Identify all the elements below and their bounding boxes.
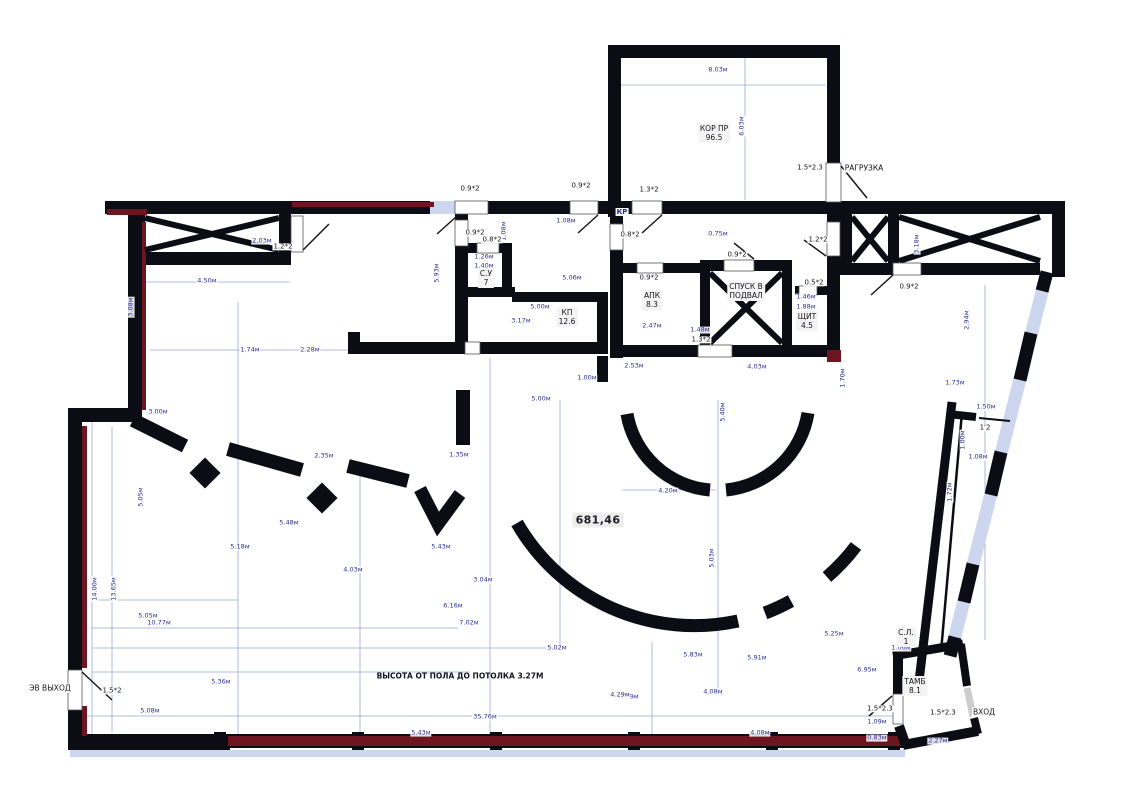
dimension-label: 6.95м <box>856 667 877 674</box>
room-label: ТАМБ8.1 <box>902 676 927 696</box>
dimension-label: 3.17м <box>510 318 531 325</box>
door-size-label: 1.3*2 <box>690 336 711 343</box>
dimension-label: 1.73м <box>944 380 965 387</box>
ceiling-height-note: ВЫСОТА ОТ ПОЛА ДО ПОТОЛКА 3.27М <box>377 672 544 681</box>
room-label: КОР ПР96.5 <box>698 123 730 143</box>
dimension-label: 1.00м <box>576 375 597 382</box>
dimension-label: 1.48м <box>689 327 710 334</box>
dimension-label: 5.43м <box>430 544 451 551</box>
dimension-label: 5.00м <box>530 396 551 403</box>
dimension-label: 1.35м <box>448 452 469 459</box>
dimension-label: 5.91м <box>746 655 767 662</box>
door-size-label: 1.3*2 <box>638 186 659 193</box>
dimension-label: 1.70м <box>840 367 847 388</box>
dimension-label: 5.83м <box>682 652 703 659</box>
dimension-label: 1.00м <box>960 429 967 450</box>
dimension-label: 1.74м <box>239 347 260 354</box>
door-size-label: 1.2*2 <box>807 236 828 243</box>
dimension-label: 5.08м <box>139 708 160 715</box>
door-size-label: 1.5*2.3 <box>866 705 894 712</box>
dimension-label: 35.76м <box>472 714 498 721</box>
room-label: ЩИТ4.5 <box>796 311 818 331</box>
dimension-label: 1.08м <box>555 218 576 225</box>
door-size-label: 0.5*2 <box>803 279 824 286</box>
dimension-label: 1.08м <box>967 454 988 461</box>
dimension-label: 0.83м <box>866 735 887 742</box>
dimension-label: 1.09м <box>866 719 887 726</box>
dimension-label: 5.02м <box>546 645 567 652</box>
dimension-label: 4.29м <box>609 692 630 699</box>
dimension-label: 2.94м <box>964 309 971 330</box>
dimension-label: 5.00м <box>529 304 550 311</box>
floor-plan-canvas: 681,46 ВЫСОТА ОТ ПОЛА ДО ПОТОЛКА 3.27М 8… <box>0 0 1143 800</box>
dimension-label: 6.03м <box>739 115 746 136</box>
dimension-label: 3.00м <box>147 409 168 416</box>
dimension-label: 5.43м <box>410 730 431 737</box>
dimension-label: 2.28м <box>299 347 320 354</box>
dimension-label: 4.08м <box>749 730 770 737</box>
dimension-label: 2.27м <box>927 738 948 745</box>
dimension-label: 5.18м <box>229 544 250 551</box>
dimension-label: 4.50м <box>196 278 217 285</box>
dimension-label: 2.47м <box>641 323 662 330</box>
dimension-label: 4.08м <box>702 689 723 696</box>
door-size-label: 0.9*2 <box>459 185 480 192</box>
dimension-label: 10.77м <box>146 620 172 627</box>
door-size-label: 0.9*2 <box>638 274 659 281</box>
labels-layer: 681,46 ВЫСОТА ОТ ПОЛА ДО ПОТОЛКА 3.27М 8… <box>0 0 1143 800</box>
dimension-label: 2.53м <box>623 363 644 370</box>
dimension-label: 5.05м <box>138 486 145 507</box>
room-label: С.У7 <box>478 268 494 288</box>
dimension-label: 8.03м <box>707 67 728 74</box>
dimension-label: 6.16м <box>442 603 463 610</box>
room-label: СПУСК ВПОДВАЛ <box>727 281 765 301</box>
door-size-label: 0.8*2 <box>619 231 640 238</box>
annotation-label: РАГРУЗКА <box>844 164 885 173</box>
dimension-label: 5.48м <box>278 520 299 527</box>
door-size-label: 1.5*2.3 <box>929 709 957 716</box>
dimension-label: 2.35м <box>313 453 334 460</box>
dimension-label: 1.26м <box>473 254 494 261</box>
dimension-label: 5.40м <box>720 401 727 422</box>
dimension-label: 0.75м <box>707 231 728 238</box>
dimension-label: 5.93м <box>434 262 441 283</box>
dimension-label: 1.46м <box>795 294 816 301</box>
door-size-label: 1'2 <box>979 424 992 431</box>
hall-area-label: 681,46 <box>573 513 624 528</box>
room-label: КП12.6 <box>557 307 578 327</box>
dimension-label: 13.65м <box>111 576 118 602</box>
door-size-label: 0.9*2 <box>570 182 591 189</box>
dimension-label: 1.50м <box>975 404 996 411</box>
door-size-label: 1.5*2.3 <box>796 164 824 171</box>
dimension-label: 5.25м <box>823 631 844 638</box>
dimension-label: 1.88м <box>795 304 816 311</box>
dimension-label: 7.02м <box>458 620 479 627</box>
dimension-label: 14.00м <box>92 576 99 602</box>
dimension-label: 5.06м <box>561 275 582 282</box>
door-size-label: 1.2*2 <box>272 243 293 250</box>
room-label: АПК8.3 <box>642 290 662 310</box>
dimension-label: 2.03м <box>251 238 272 245</box>
annotation-label: ВХОД <box>972 708 996 717</box>
dimension-label: 5.36м <box>210 679 231 686</box>
door-size-label: 0.9*2 <box>898 283 919 290</box>
dimension-label: 4.03м <box>746 364 767 371</box>
dimension-label: 3.04м <box>472 577 493 584</box>
door-size-label: 0.8*2 <box>481 236 502 243</box>
dimension-label: 1.72м <box>947 481 954 502</box>
dimension-label: 5.03м <box>709 547 716 568</box>
door-size-label: 1.5*2 <box>101 687 122 694</box>
dimension-label: 3.18м <box>914 233 921 254</box>
annotation-label: КР <box>616 208 629 216</box>
dimension-label: 4.03м <box>342 567 363 574</box>
room-label: С.Л.1 <box>896 627 916 647</box>
annotation-label: ЭВ ВЫХОД <box>28 684 71 693</box>
door-size-label: 0.9*2 <box>726 251 747 258</box>
dimension-label: 3.08м <box>128 296 135 317</box>
dimension-label: 4.20м <box>657 488 678 495</box>
